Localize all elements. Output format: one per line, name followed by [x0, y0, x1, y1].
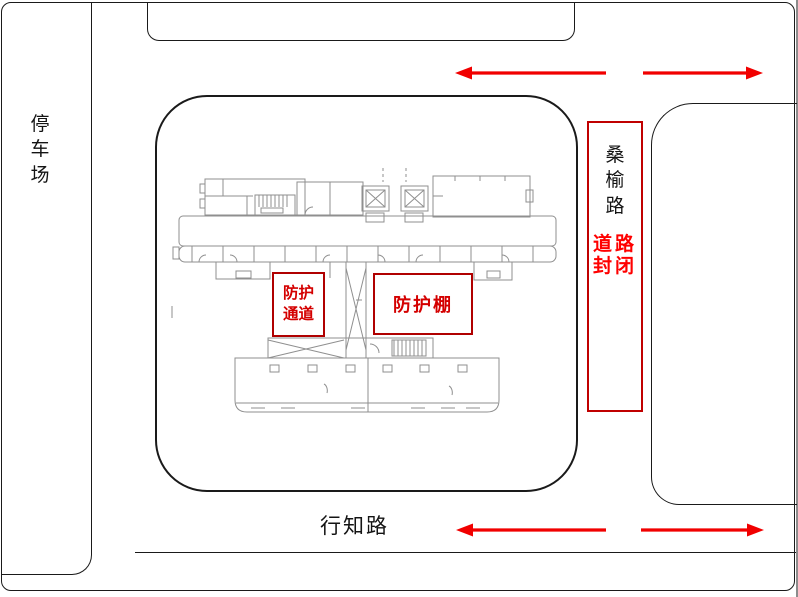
sangyu-road-label: 桑榆路 — [604, 143, 626, 219]
construction-site-block — [155, 95, 578, 492]
construction-site-traffic-plan: 停车场 — [0, 0, 798, 597]
protection-passage-label: 防护通道 — [281, 284, 316, 324]
east-block — [651, 103, 797, 505]
south-road-edge-line — [135, 552, 796, 553]
road-closure-box: 桑榆路 道路封闭 — [587, 121, 643, 412]
protection-shed-label: 防护棚 — [393, 291, 453, 317]
xingzhi-road-label: 行知路 — [320, 510, 389, 540]
parking-label: 停车场 — [29, 112, 51, 188]
protection-shed-box: 防护棚 — [373, 273, 473, 335]
north-block — [147, 2, 575, 41]
road-closed-notice: 道路封闭 — [591, 234, 639, 279]
protection-passage-box: 防护通道 — [272, 272, 325, 337]
parking-area: 停车场 — [1, 2, 92, 575]
